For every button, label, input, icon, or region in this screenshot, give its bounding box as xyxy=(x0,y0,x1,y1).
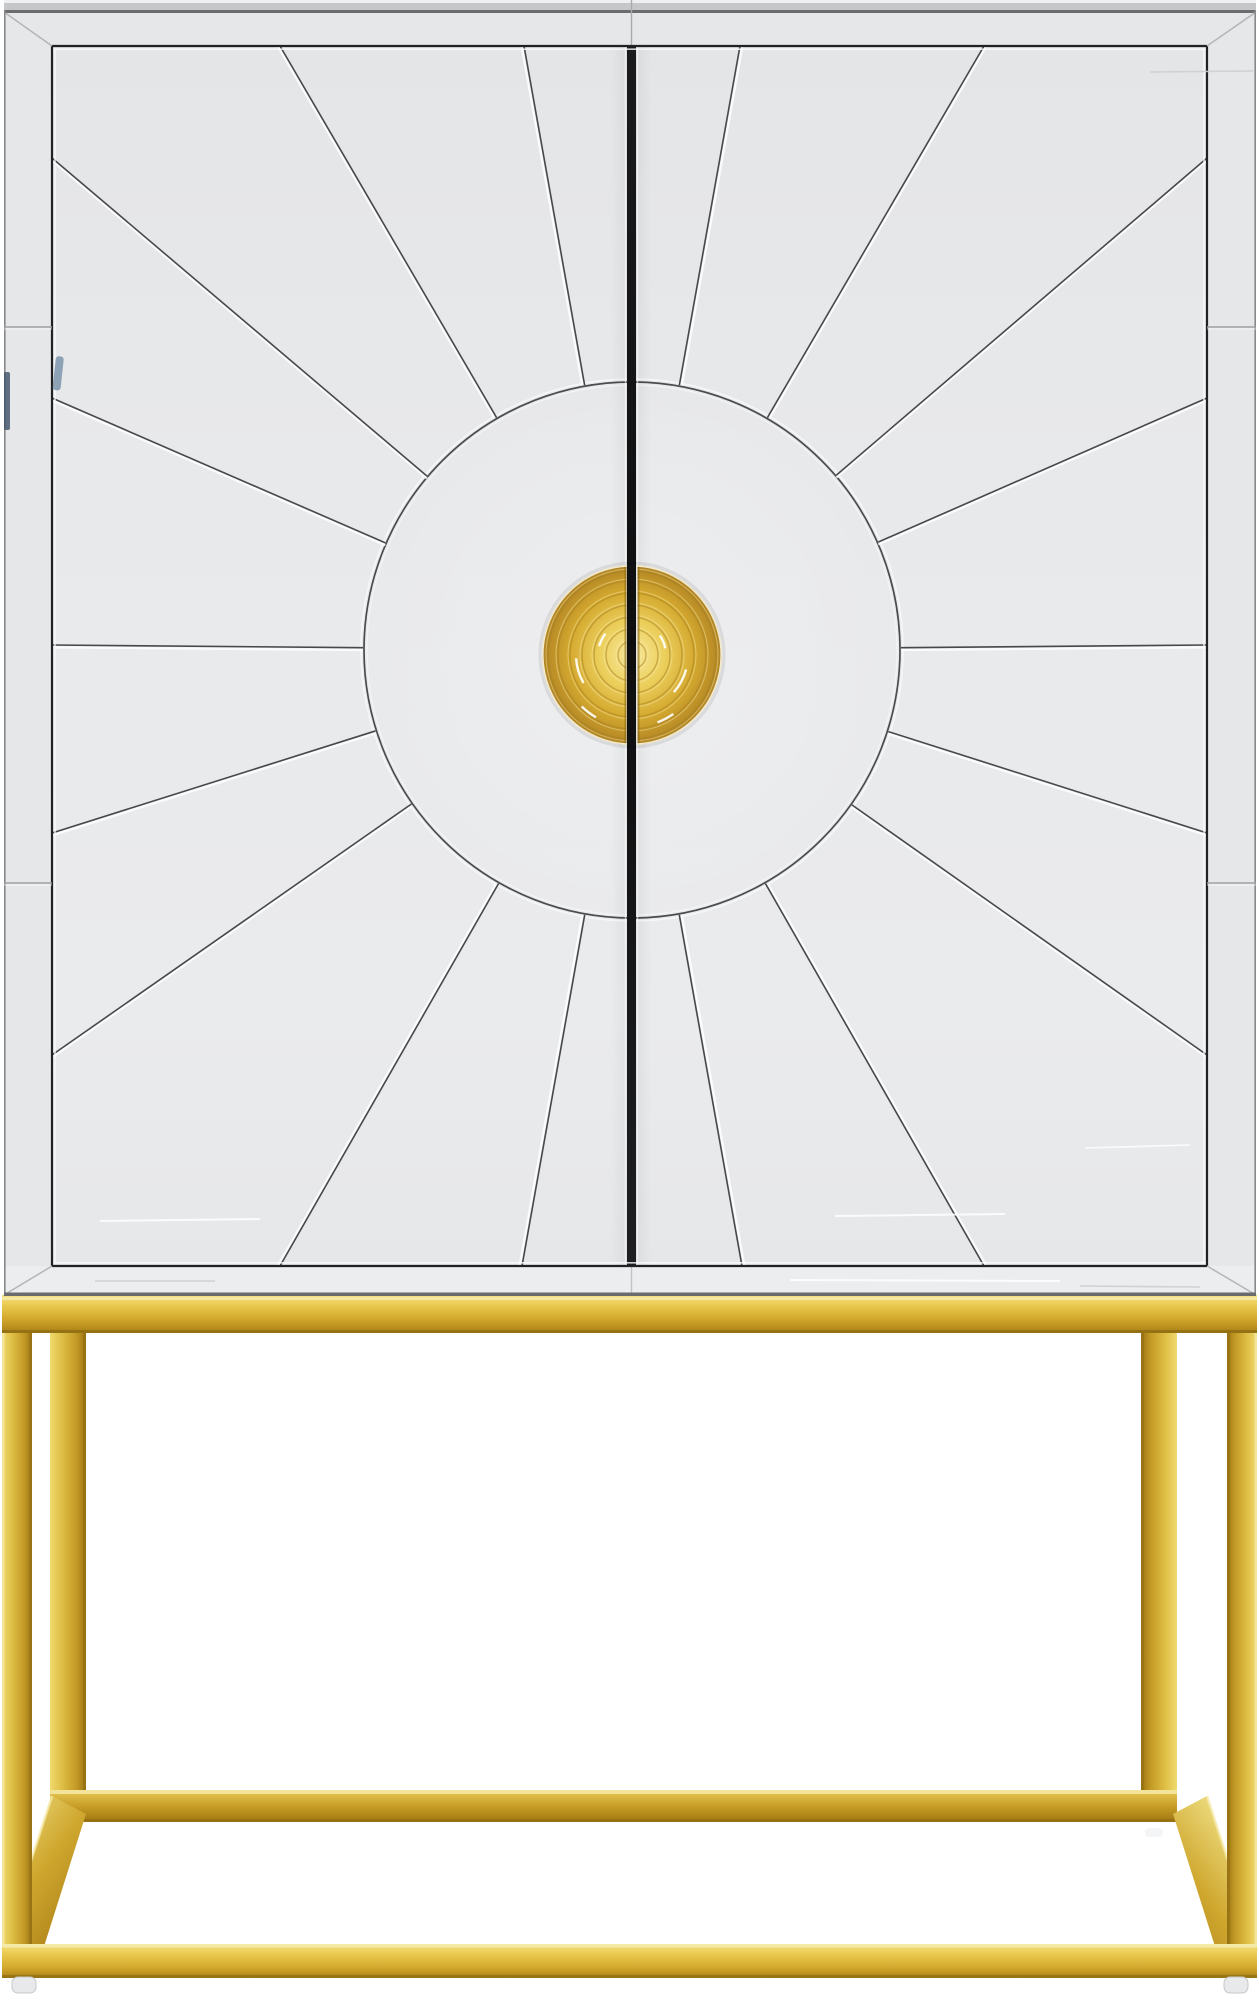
frame-reflection xyxy=(4,372,10,430)
foot-glide xyxy=(12,1977,36,1993)
door-gap xyxy=(627,46,636,1266)
mirror-scratch xyxy=(1150,71,1253,72)
gold-base xyxy=(2,1295,1257,1993)
base-back-leg xyxy=(50,1333,86,1814)
base-back-rail xyxy=(50,1790,1177,1822)
mirror-scratch xyxy=(1080,1286,1200,1287)
back-foot xyxy=(1145,1828,1163,1837)
product-photo-sunburst-bar-cabinet xyxy=(0,0,1259,2000)
base-front-leg xyxy=(2,1333,32,1950)
base-front-rail xyxy=(2,1944,1257,1978)
base-back-leg xyxy=(1141,1333,1177,1814)
base-top-rail xyxy=(2,1295,1257,1333)
mirror-scratch xyxy=(790,1280,1060,1281)
foot-glide xyxy=(1224,1977,1248,1993)
base-front-leg xyxy=(1227,1333,1257,1950)
cabinet-illustration xyxy=(0,0,1259,2000)
mirrored-cabinet xyxy=(4,0,1256,1296)
